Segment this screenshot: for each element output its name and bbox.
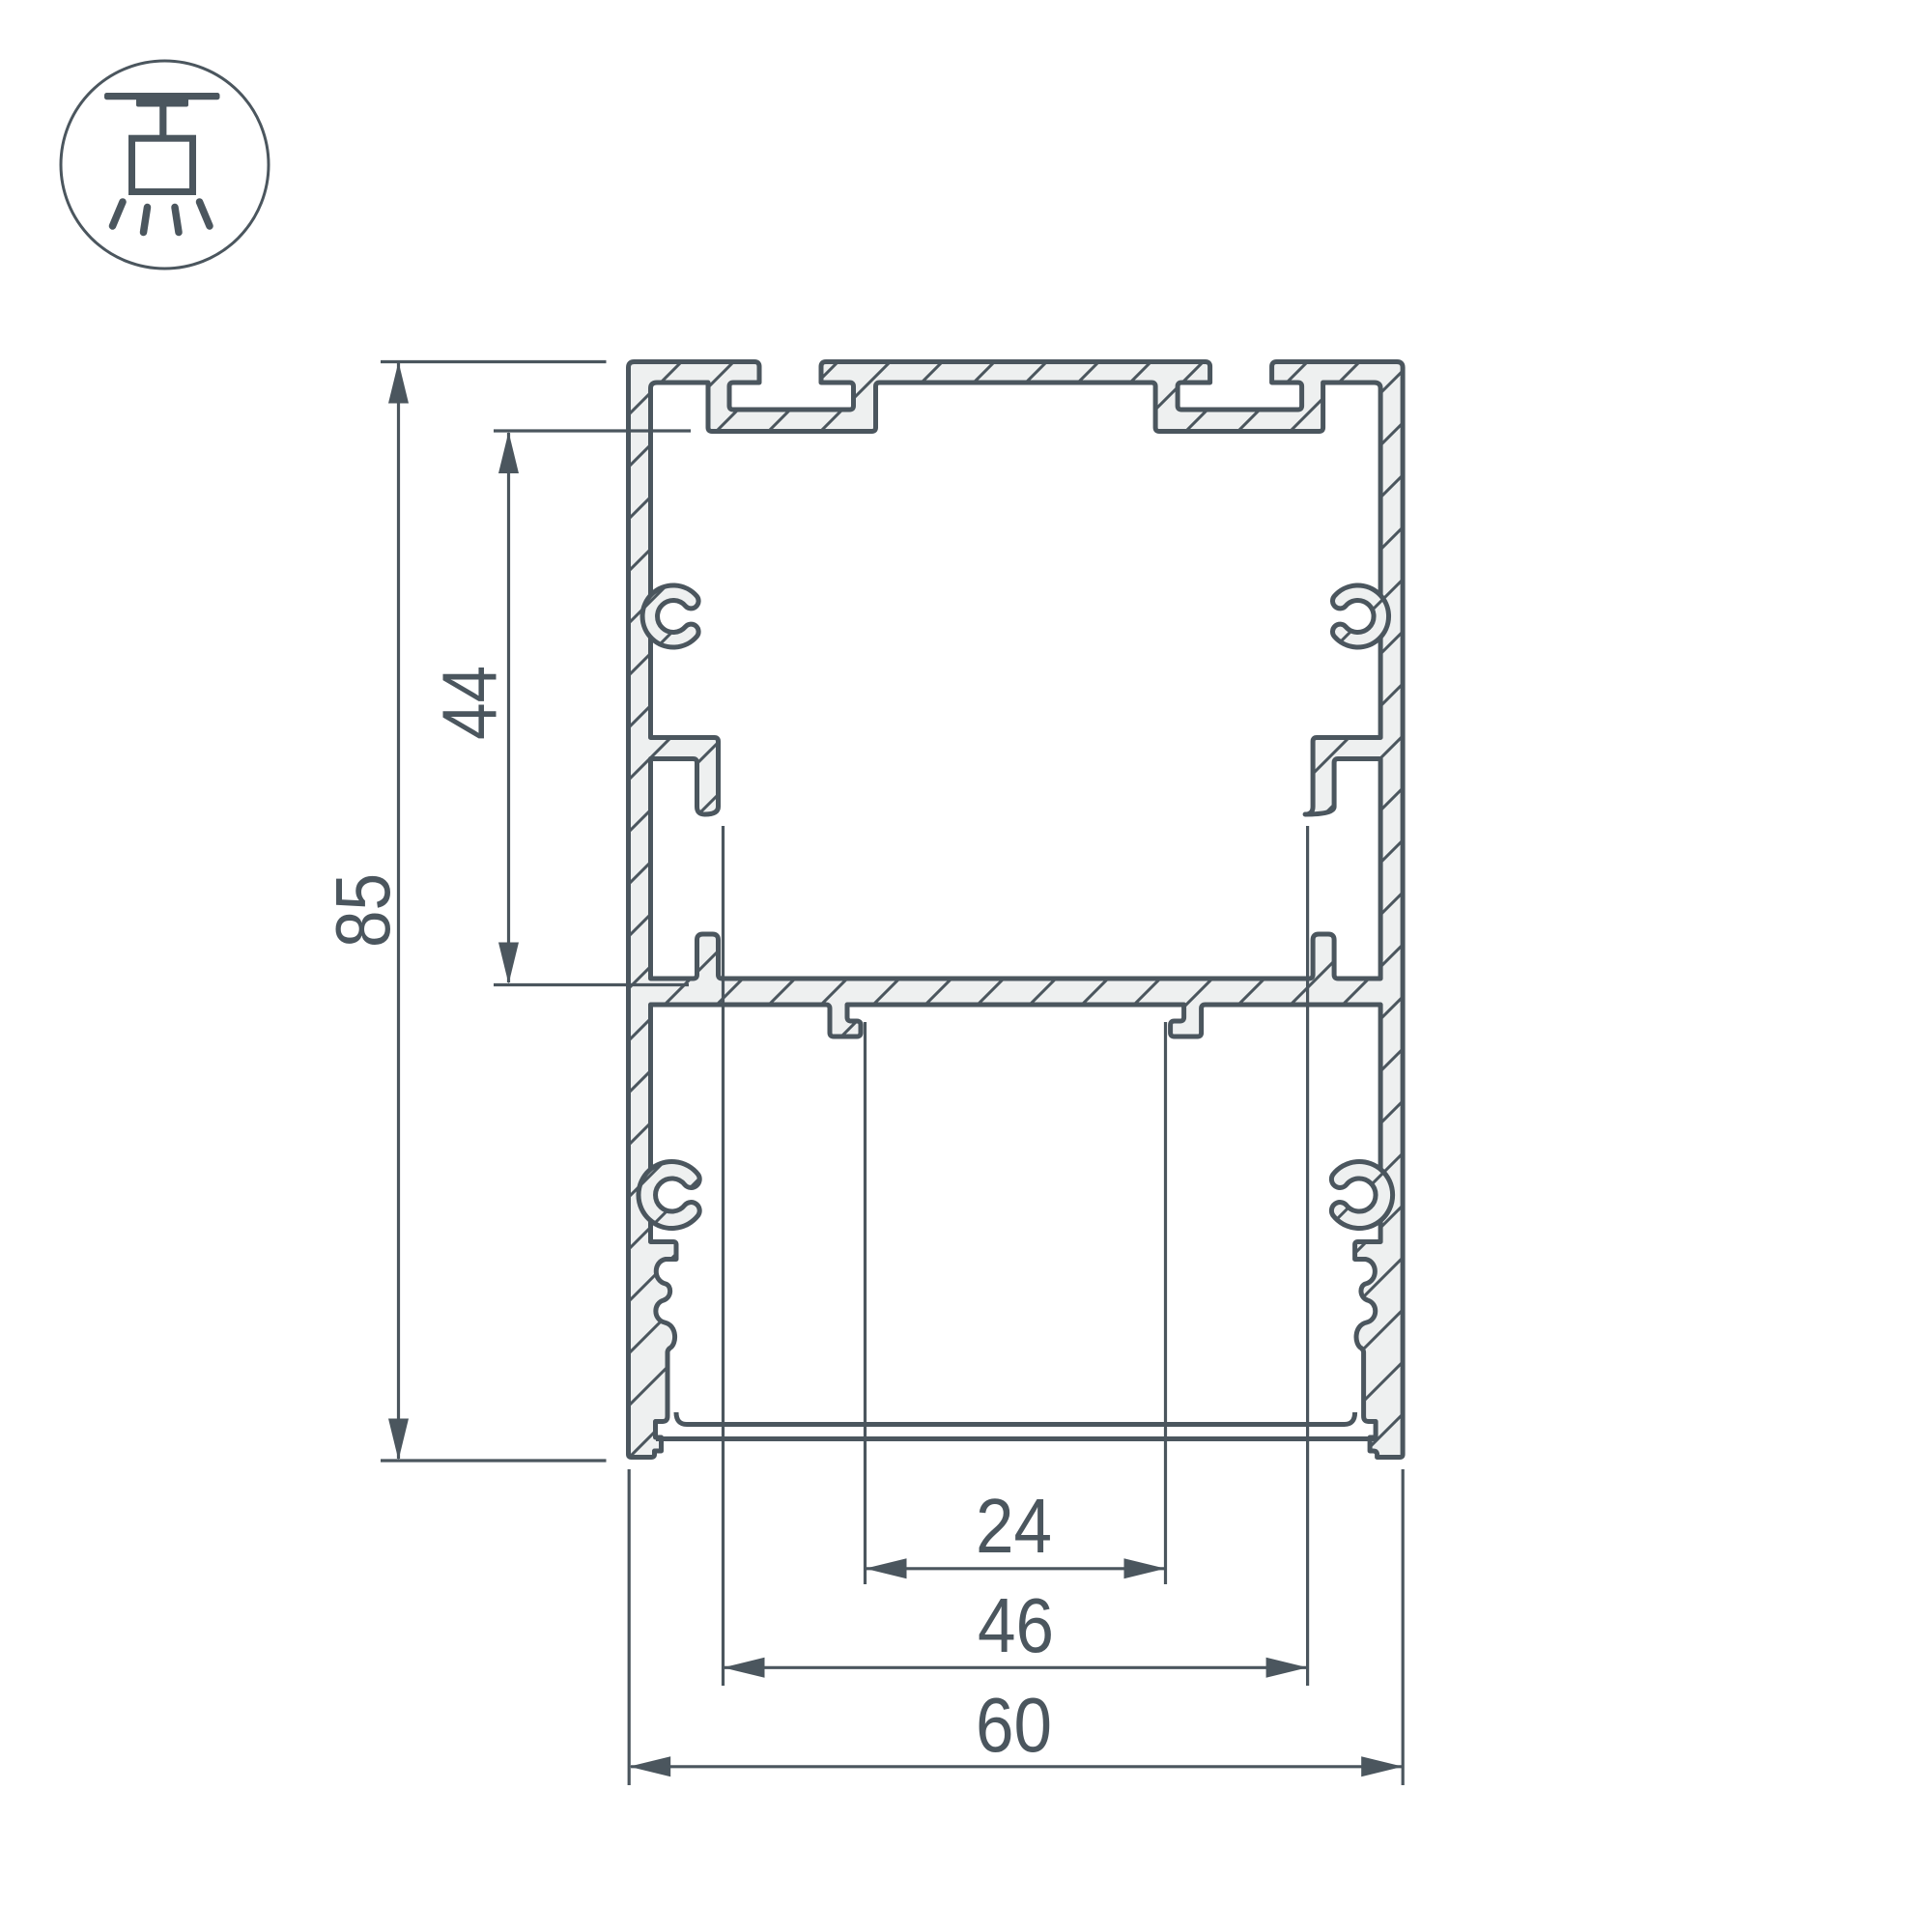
svg-text:46: 46	[978, 1582, 1054, 1668]
svg-text:24: 24	[976, 1483, 1052, 1569]
svg-text:60: 60	[976, 1682, 1052, 1768]
svg-text:44: 44	[427, 666, 513, 740]
svg-text:85: 85	[320, 873, 406, 948]
